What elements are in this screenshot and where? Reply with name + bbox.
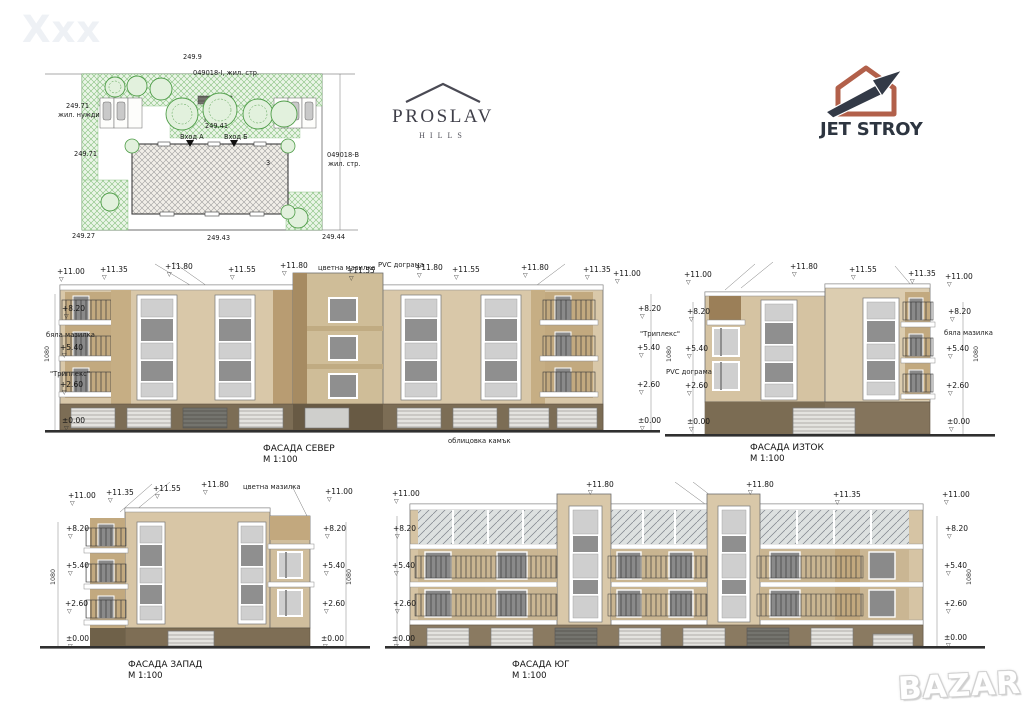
jetstroy-wordmark: JET STROY — [820, 119, 930, 140]
ground-floor — [705, 402, 930, 434]
garage-door — [683, 628, 725, 646]
watermark-xxx: Xxx — [22, 8, 101, 51]
window-strip — [137, 295, 177, 400]
ground-floor — [410, 625, 923, 646]
garage-door — [427, 628, 469, 646]
facade-south: +11.00▽+11.80▽+11.80▽+11.35▽+11.00▽+8.20… — [385, 482, 985, 667]
facade-west-drawing — [40, 482, 370, 667]
stair-tower — [707, 494, 760, 646]
stair-tower — [557, 494, 611, 646]
garage-door — [397, 408, 441, 428]
ground-line — [385, 646, 985, 649]
garage-door — [127, 408, 171, 428]
facade-north-drawing — [45, 262, 660, 438]
window-strip — [137, 522, 165, 624]
caption-south: ФАСАДА ЮГМ 1:100 — [512, 660, 570, 682]
logo-jetstroy: JET STROY — [820, 56, 930, 140]
ground-floor — [60, 404, 603, 430]
window-strip — [481, 295, 521, 400]
facade-south-drawing — [385, 482, 985, 667]
facade-east: +11.00▽+11.80▽+11.55▽+11.35▽+11.00▽+8.20… — [665, 262, 995, 442]
building-footprint — [125, 139, 295, 219]
logo-proslav: PROSLAV HILLS — [388, 80, 498, 140]
shop-window — [305, 408, 349, 428]
balcony-stack-left — [59, 292, 115, 398]
ground-floor — [90, 628, 310, 646]
proslav-wordmark: PROSLAV — [388, 106, 498, 128]
level-mark: облицовка камък▽ — [448, 437, 511, 445]
garage-door — [557, 408, 597, 428]
balcony-stack-right — [540, 292, 598, 398]
site-plan-drawing — [40, 52, 360, 247]
drawing-sheet: Xxx — [0, 0, 1024, 723]
proslav-subtitle: HILLS — [388, 131, 498, 140]
jetstroy-house-arrow-icon — [820, 56, 920, 118]
facade-north: +11.00▽+11.35▽+11.80▽+11.55▽+11.80▽цветн… — [45, 262, 660, 438]
ground-line — [40, 646, 370, 649]
ground-line — [665, 434, 995, 437]
ground-line — [45, 430, 660, 433]
window-strip — [761, 300, 797, 400]
balcony-stack-right — [901, 292, 935, 400]
garage-door — [793, 408, 855, 434]
garage-door — [71, 408, 115, 428]
facade-west: +11.00▽+11.35▽+11.55▽+11.80▽цветна мазил… — [40, 482, 370, 667]
window-strip — [401, 295, 441, 400]
garage-door — [239, 408, 283, 428]
watermark-bazar: BAZAR — [897, 665, 1022, 707]
garage-door — [509, 408, 549, 428]
garage-door — [491, 628, 533, 646]
site-plan: 249.9049018-I, жил. стр.249.71жил. нужди… — [40, 52, 360, 247]
left-window-column — [707, 296, 745, 390]
caption-north: ФАСАДА СЕВЕРМ 1:100 — [263, 444, 335, 466]
balcony-stack-left — [84, 518, 128, 628]
garage-door-dark — [747, 628, 789, 646]
window-strip — [863, 298, 899, 400]
garage-door — [453, 408, 497, 428]
garage-door-dark — [183, 408, 227, 428]
winter-garden-row — [418, 510, 909, 544]
window-strip — [215, 295, 255, 400]
garage-door — [873, 634, 913, 646]
garage-door — [811, 628, 853, 646]
proslav-roof-icon — [388, 80, 498, 104]
facade-east-drawing — [665, 262, 995, 442]
window-strip — [238, 522, 266, 624]
caption-west: ФАСАДА ЗАПАДМ 1:100 — [128, 660, 202, 682]
garage-door — [619, 628, 661, 646]
garage-door — [168, 631, 214, 646]
garage-door-dark — [555, 628, 597, 646]
caption-east: ФАСАДА ИЗТОКМ 1:100 — [750, 443, 824, 465]
